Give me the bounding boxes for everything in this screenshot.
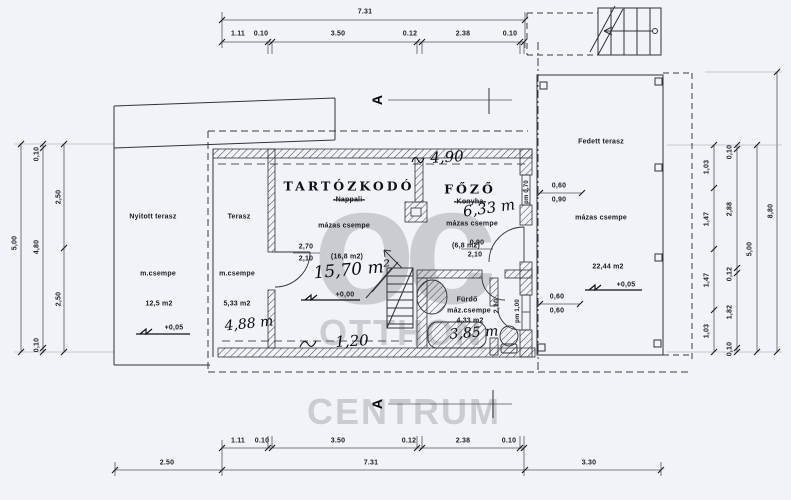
dim-top-seg-5: 2.38 [456, 31, 470, 38]
dim-left-c1: 0,10 [34, 147, 41, 161]
dim-parapet-lower: pm 1,00 [515, 299, 521, 323]
dim-bot-seg-5: 2.38 [456, 438, 470, 445]
section-marker-bottom: A [369, 399, 385, 409]
dim-bot-seg-4: 0.12 [402, 438, 416, 445]
dim-right-b5: 0,10 [727, 342, 734, 356]
toilet-tank-icon [501, 344, 517, 353]
dim-top-seg-3: 3.50 [331, 31, 345, 38]
dim-right-b2: 2,88 [727, 202, 734, 216]
dim-top-seg-4: 0.12 [403, 31, 417, 38]
dim-top-seg-2: 0.10 [254, 31, 268, 38]
dim-right-b4: 1,82 [727, 305, 734, 319]
room-nyitott-terasz-name: Nyitott terasz [129, 214, 176, 221]
room-nyitott-terasz-level: +0,05 [165, 325, 184, 332]
dim-bot-seg-2: 0.10 [255, 438, 269, 445]
room-terasz-area: 5,33 m2 [223, 301, 250, 308]
room-furdo-area: 4,33 m2 [456, 318, 483, 325]
door-symbols [275, 227, 524, 330]
dim-bath-door-h: 2,10 [494, 299, 501, 313]
dim-parapet-upper: pm 0,70 [524, 180, 530, 204]
dim-window-lower-w: 0,60 [550, 294, 564, 301]
toilet-icon [500, 326, 518, 346]
dim-bot-seg-6: 0.10 [502, 438, 516, 445]
hand-note-bottom-width: 1,20 [335, 331, 369, 351]
dimension-lines [14, 12, 782, 476]
room-nyitott-terasz-area: 12,5 m2 [145, 301, 172, 308]
dim-left-half-2: 2,50 [56, 292, 63, 306]
washbasin-icon [417, 280, 447, 314]
dim-bot-total-1: 2.50 [160, 460, 174, 467]
bath-fixtures [417, 280, 518, 353]
dim-right-c: 5,00 [747, 242, 754, 256]
dim-window-upper-w: 0,60 [552, 183, 566, 190]
room-tartozkodo-finish: mázas csempe [318, 223, 370, 230]
dimension-ticks [18, 17, 780, 473]
room-tartozkodo-level: +0,00 [336, 292, 355, 299]
room-terasz-name: Terasz [228, 214, 251, 221]
dim-living-door-w: 2,70 [299, 244, 313, 251]
dim-bot-seg-3: 3.50 [331, 438, 345, 445]
room-tartozkodo-name: TARTÓZKODÓ [284, 179, 415, 194]
section-lines [388, 88, 512, 418]
room-fedett-terasz-name: Fedett terasz [578, 139, 624, 146]
room-nyitott-terasz-finish: m.csempe [140, 271, 176, 278]
room-tartozkodo-former-name: -Nappali- [333, 197, 365, 204]
dim-window-lower-h: 0,60 [550, 308, 564, 315]
hand-note-top-width: 4,90 [430, 147, 464, 167]
dim-right-b3: 0,12 [727, 267, 734, 281]
room-fozo-finish: mázas csempe [446, 221, 498, 228]
dim-bot-seg-1: 1.11 [231, 438, 245, 445]
hand-note-bath-area: 3,85 m [449, 323, 499, 342]
dim-bot-total-3: 3.30 [582, 460, 596, 467]
dim-left-c2: 4,80 [34, 240, 41, 254]
floor-plan-scan: oc OTTHON CENTRUM [0, 0, 791, 500]
room-furdo-name: Fürdő [457, 297, 478, 304]
room-fedett-terasz-area: 22,44 m2 [592, 264, 623, 271]
kitchen-door [489, 227, 524, 262]
dim-left-c3: 0,10 [34, 338, 41, 352]
chimney-flue [411, 208, 421, 216]
room-fozo-area: (6,8 m2) [452, 243, 480, 250]
room-fedett-terasz-finish: mázas csempe [575, 215, 627, 222]
exterior-stair-icon [590, 6, 661, 55]
room-fedett-terasz-level: +0,05 [617, 282, 636, 289]
dim-living-door-h: 2,10 [299, 256, 313, 263]
dim-right-a1: 1,03 [704, 160, 711, 174]
dim-right-a3: 1,47 [704, 273, 711, 287]
dim-right-b1: 0,10 [727, 145, 734, 159]
room-terasz-finish: m.csempe [219, 271, 255, 278]
room-fozo-name: FŐZŐ [444, 182, 496, 197]
dim-right-a4: 1,03 [704, 324, 711, 338]
section-marker-top: A [369, 95, 385, 105]
dim-window-upper-h: 0,90 [552, 197, 566, 204]
dim-left-overall: 5,00 [12, 236, 19, 250]
dim-right-a2: 1,47 [704, 212, 711, 226]
dim-top-seg-1: 1.11 [231, 31, 245, 38]
plan-linework [0, 0, 791, 500]
room-furdo-finish: máz.csempe [447, 308, 491, 315]
dim-top-total: 7.31 [358, 9, 372, 16]
dim-top-seg-6: 0.10 [503, 31, 517, 38]
dim-left-half-1: 2,50 [56, 190, 63, 204]
dim-right-d: 8,80 [768, 204, 775, 218]
dim-kitchen-door-h: 2,10 [468, 252, 482, 259]
dim-bot-total-2: 7.31 [364, 460, 378, 467]
